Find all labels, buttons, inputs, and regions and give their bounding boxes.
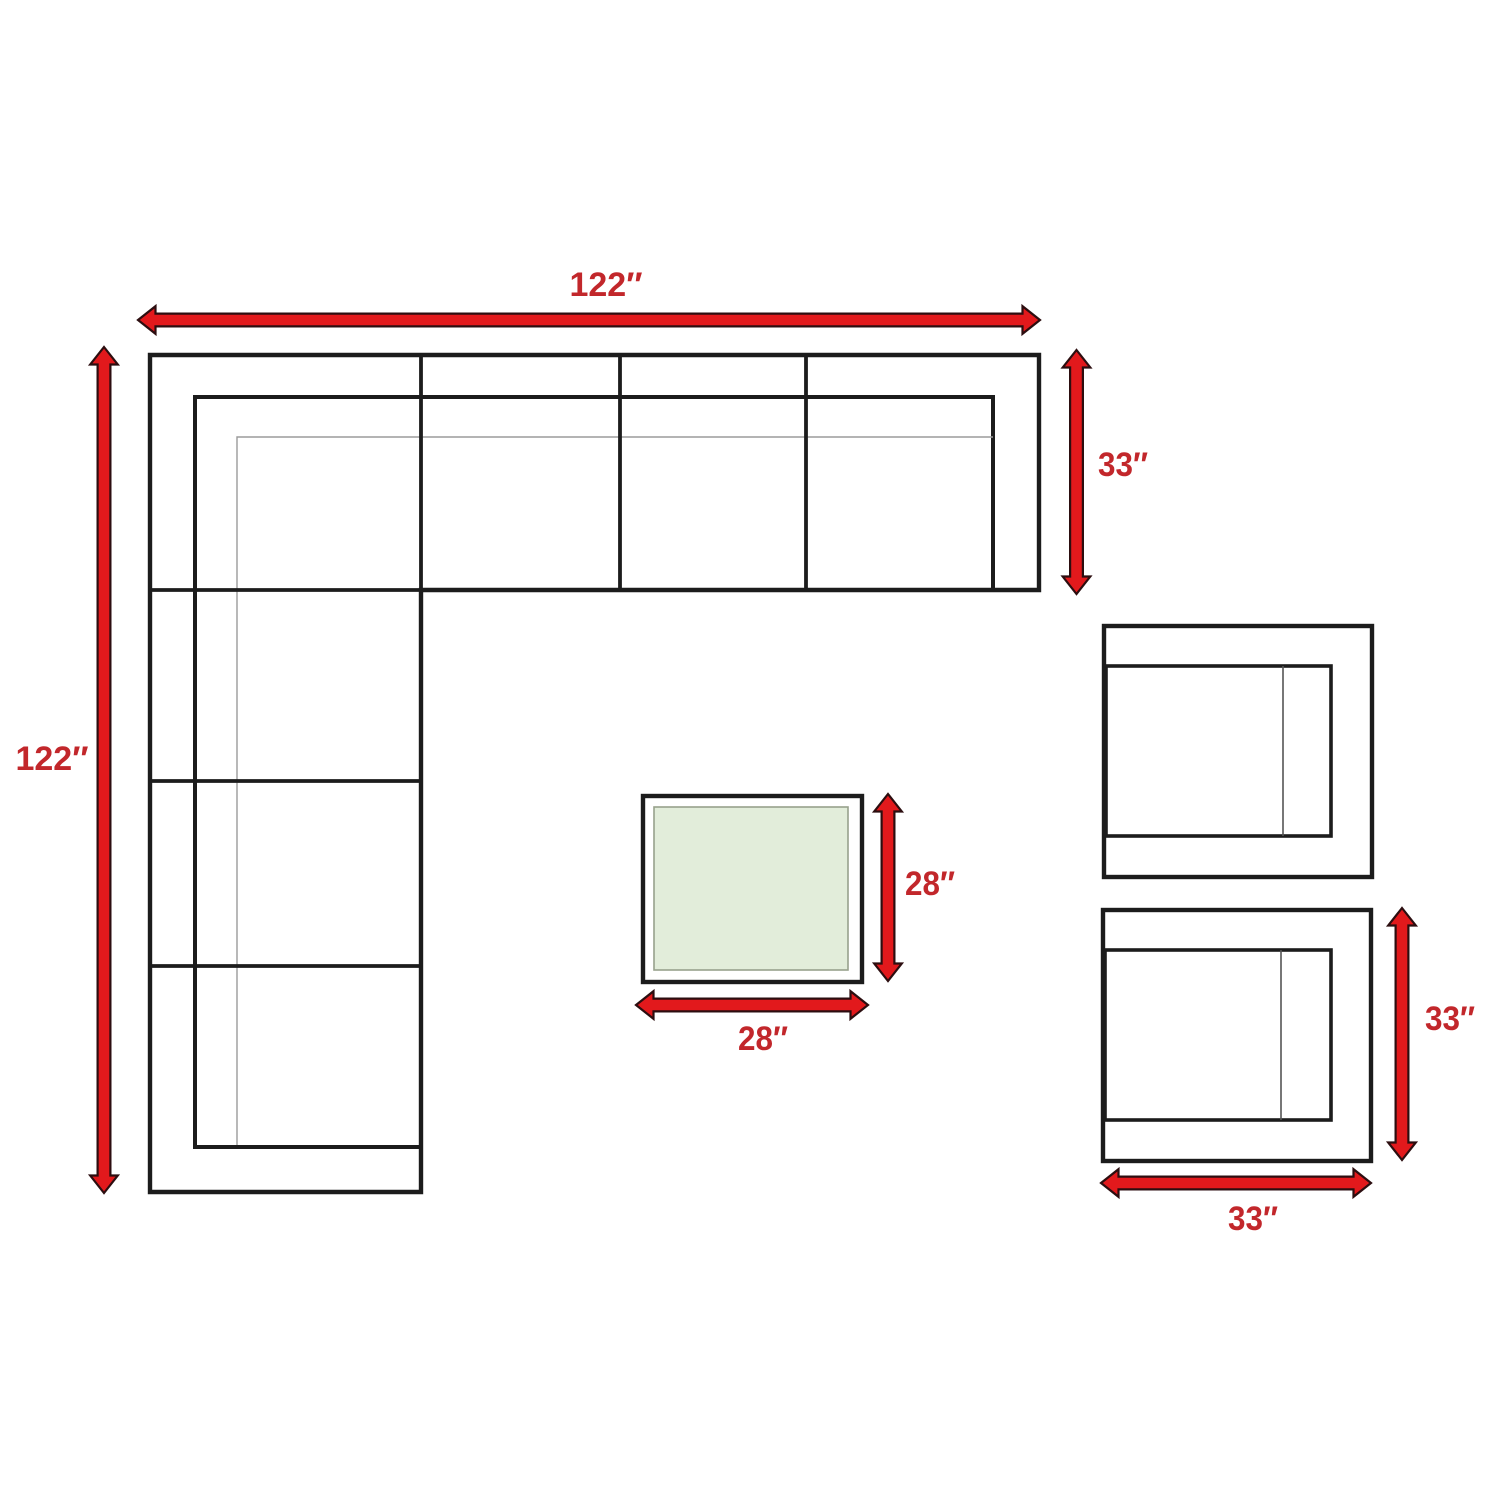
svg-text:33″: 33″ (1098, 446, 1148, 484)
svg-text:28″: 28″ (738, 1020, 788, 1058)
svg-text:33″: 33″ (1425, 1000, 1475, 1038)
svg-text:122″: 122″ (569, 266, 642, 304)
svg-text:28″: 28″ (905, 865, 955, 903)
svg-text:33″: 33″ (1228, 1200, 1278, 1238)
svg-text:122″: 122″ (15, 740, 88, 778)
